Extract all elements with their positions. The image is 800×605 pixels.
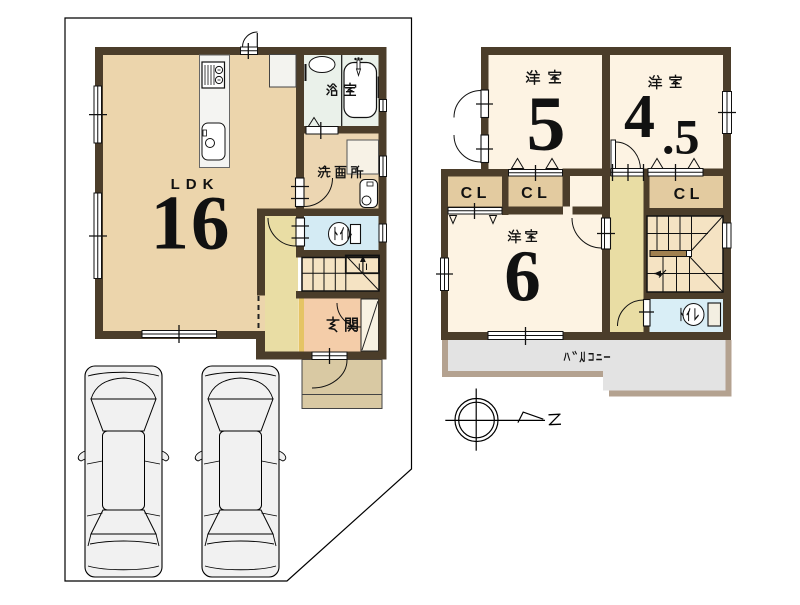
svg-text:16: 16: [151, 180, 232, 266]
svg-text:C L: C L: [521, 185, 547, 202]
svg-text:.5: .5: [662, 109, 700, 165]
svg-text:C L: C L: [461, 185, 487, 202]
svg-text:5: 5: [527, 80, 566, 167]
svg-text:4: 4: [624, 83, 655, 151]
svg-text:6: 6: [504, 236, 541, 317]
svg-text:C L: C L: [674, 186, 700, 203]
